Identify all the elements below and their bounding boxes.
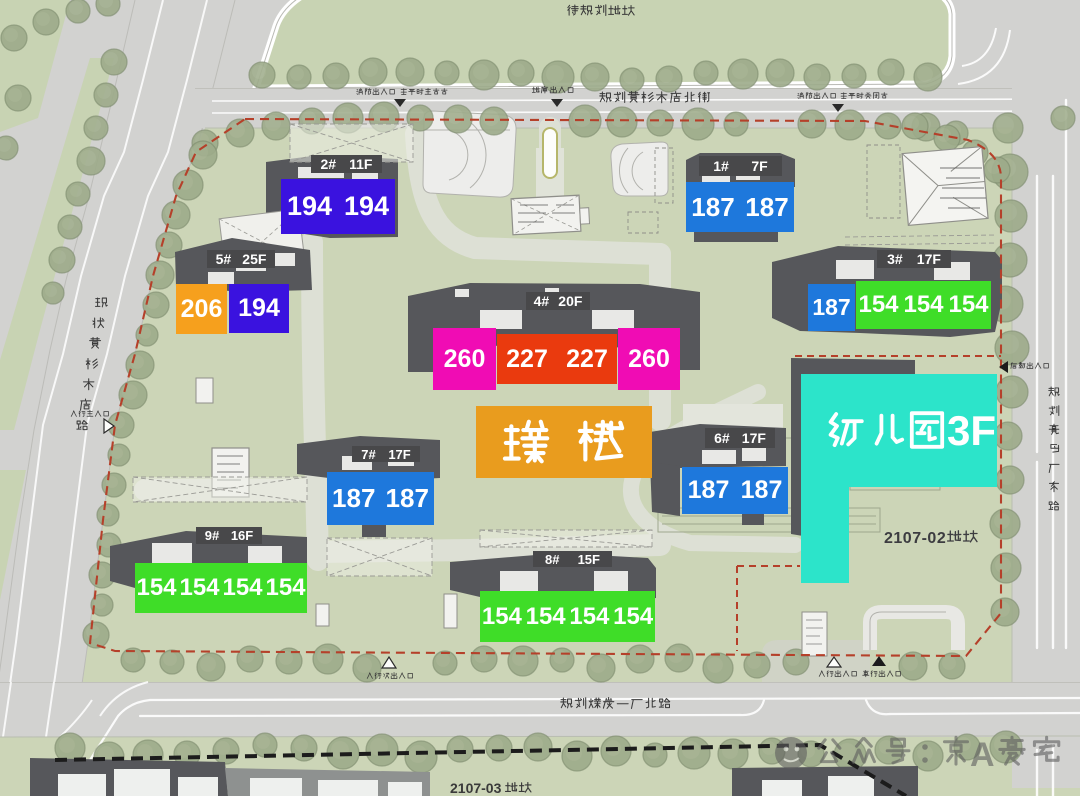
svg-text:2107-03: 2107-03 [450, 780, 502, 796]
svg-text:A: A [970, 736, 995, 774]
svg-text:3F: 3F [947, 407, 996, 454]
